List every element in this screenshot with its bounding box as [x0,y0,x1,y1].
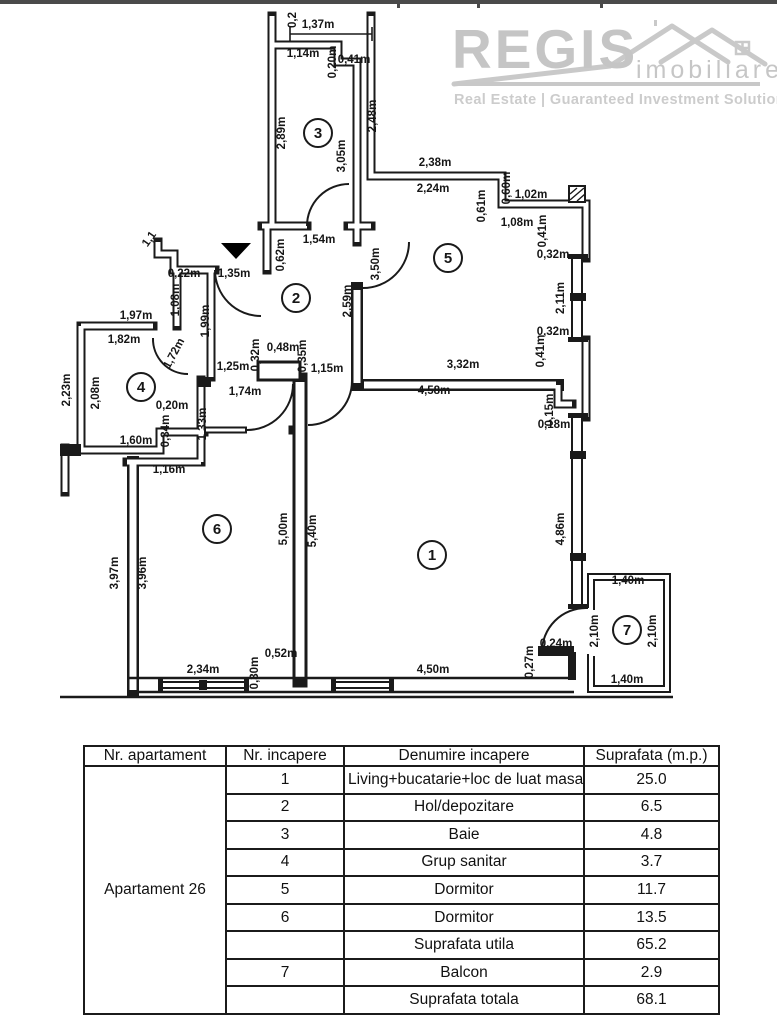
dimension-label: 2,10m [647,615,659,648]
room-number: 5 [444,250,452,267]
area-table: Nr. apartament Nr. incapere Denumire inc… [83,745,720,1015]
dimension-label: 2,11m [555,282,567,314]
room-number: 2 [292,290,300,307]
dimension-label: 0,62m [275,239,287,272]
room-number-cell: 5 [226,876,344,904]
dimension-label: 1,40m [612,575,645,587]
floor-plan: 1,37m0,21,14m0,20m0,41m2,89m3,05m2,48m2,… [0,0,777,730]
room-name-cell: Living+bucatarie+loc de luat masa [344,766,584,794]
window-bottom-right [331,678,394,692]
dimension-label: 1,08m [170,284,182,317]
dimension-label: 1,37m [302,19,335,31]
dimension-label: 1,16m [153,464,186,476]
room-name-cell: Dormitor [344,904,584,932]
wall-junction [198,377,211,387]
room-area-cell: 68.1 [584,986,719,1014]
table-row: Apartament 261Living+bucatarie+loc de lu… [84,766,719,794]
room-name-cell: Grup sanitar [344,849,584,877]
dimension-label: 0,35m [297,340,309,373]
dimension-label: 5,40m [307,515,319,548]
dimension-label: 1,25m [217,361,250,373]
dimension-label: 1,40m [611,674,644,686]
dimension-label: 0,41m [338,54,371,66]
col-header-room-no: Nr. incapere [226,746,344,766]
room-name-cell: Suprafata utila [344,931,584,959]
room-number-cell: 1 [226,766,344,794]
dimension-label: 1,02m [515,189,548,201]
dimension-label: 0,18m [538,419,571,431]
room-area-cell: 13.5 [584,904,719,932]
room-number: 7 [623,622,631,639]
col-header-area: Suprafata (m.p.) [584,746,719,766]
dimension-label: 2,34m [187,664,220,676]
dimension-label: 0,52m [265,648,298,660]
room-name-cell: Hol/depozitare [344,794,584,822]
dimension-label: 3,97m [109,557,121,590]
wall-pillar [258,362,300,380]
section-marker [569,186,585,202]
dimension-label: 1,35m [218,268,251,280]
dimension-label: 4,50m [417,664,450,676]
dimension-label: 3,50m [370,248,382,281]
dimension-label: 0,48m [267,342,300,354]
wall-notch [60,444,81,456]
room-number-cell: 7 [226,959,344,987]
room-name-cell: Dormitor [344,876,584,904]
dimension-label: 0,32m [537,249,570,261]
dimension-label: 0,20m [156,400,189,412]
dimension-label: 0,41m [535,335,547,368]
dimension-label: 2,23m [61,374,73,407]
dimension-label: 2,59m [342,285,354,318]
col-header-apartment: Nr. apartament [84,746,226,766]
dimension-label: 1,72m [161,336,187,370]
dimension-label: 0,41m [537,215,549,248]
dimension-label: 2,38m [419,157,452,169]
col-header-room-name: Denumire incapere [344,746,584,766]
dimension-label: 1,54m [303,234,336,246]
room-number-cell: 4 [226,849,344,877]
dimension-label: 4,86m [555,513,567,546]
room-name-cell: Suprafata totala [344,986,584,1014]
room-area-cell: 11.7 [584,876,719,904]
dimension-label: 2,10m [589,615,601,648]
dimension-label: 5,00m [278,513,290,546]
room-area-cell: 25.0 [584,766,719,794]
dimension-label: 0,22m [168,268,201,280]
room-number: 4 [137,379,146,396]
dimension-label: 3,05m [336,140,348,173]
dimension-label: 0,27m [524,646,536,679]
dimension-label: 1,08m [501,217,534,229]
room-area-cell: 6.5 [584,794,719,822]
dimension-label: 1,97m [120,310,153,322]
dimension-label: 0,60m [501,172,513,205]
dimension-label: 2,24m [417,183,450,195]
dimension-label: 2,08m [90,377,102,410]
dimension-label: 0,30m [249,657,261,690]
dimension-label: 0,24m [540,638,573,650]
room-area-cell: 4.8 [584,821,719,849]
dimension-label: 4,58m [418,385,451,397]
room-number-cell [226,986,344,1014]
dimension-label: 1,60m [120,435,153,447]
dimension-label: 3,96m [137,557,149,590]
dimension-label: 3,32m [447,359,480,371]
room-number: 3 [314,125,322,142]
room-area-cell: 2.9 [584,959,719,987]
dimension-label: 0,34m [160,415,172,448]
window-right-upper [568,254,588,342]
dimension-label: 1,14m [287,48,320,60]
floorplan-page: { "logo": { "brand": "REGIS", "brand_sub… [0,0,777,1024]
window-right-lower [568,413,588,609]
apartment-label: Apartament 26 [84,766,226,1014]
room-number-cell [226,931,344,959]
room-number-cell: 6 [226,904,344,932]
entrance-marker [221,243,251,259]
dimension-label: 2,48m [367,100,379,133]
room-area-cell: 65.2 [584,931,719,959]
room-name-cell: Balcon [344,959,584,987]
dimension-label: 1,15m [311,363,344,375]
room-number-cell: 2 [226,794,344,822]
dimension-label: 1,74m [229,386,262,398]
dimension-label: 1,82m [108,334,141,346]
dimension-label: 0,32m [250,339,262,372]
room-name-cell: Baie [344,821,584,849]
dimension-label: 1,33m [197,408,209,441]
dimension-label: 1,99m [200,305,212,338]
room-number: 6 [213,521,221,538]
room-number-cell: 3 [226,821,344,849]
window-bottom-left [158,678,249,692]
room-area-cell: 3.7 [584,849,719,877]
area-table-wrap: Nr. apartament Nr. incapere Denumire inc… [83,745,718,1015]
dimension-label: 0,2 [287,12,299,28]
dimension-label: 2,89m [276,117,288,150]
dimension-label: 0,61m [476,190,488,223]
room-number: 1 [428,547,436,564]
